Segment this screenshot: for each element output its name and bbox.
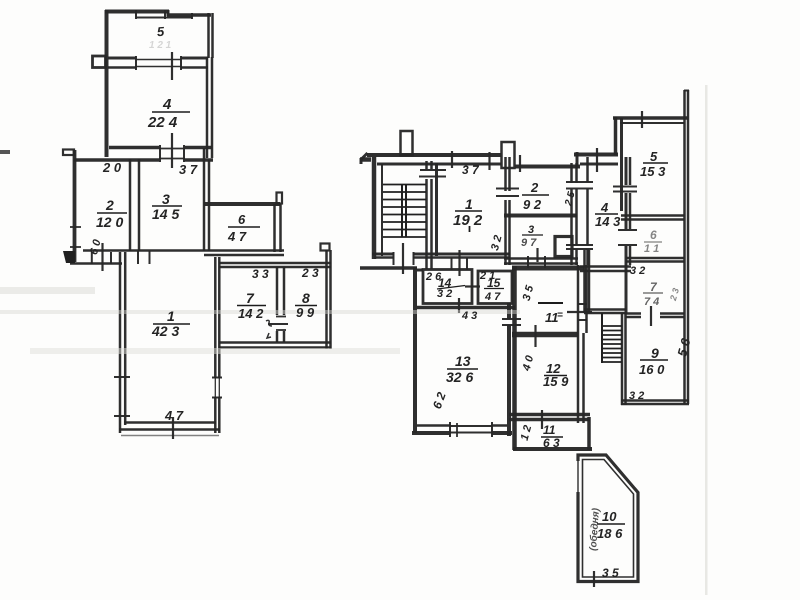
svg-text:1: 1 <box>167 308 175 324</box>
svg-text:5: 5 <box>156 24 165 40</box>
svg-text:5 6: 5 6 <box>674 336 693 358</box>
svg-text:2 3: 2 3 <box>301 266 319 280</box>
svg-text:1 2: 1 2 <box>519 424 535 442</box>
svg-text:2 0: 2 0 <box>102 160 122 175</box>
svg-text:4: 4 <box>600 200 609 215</box>
svg-text:6: 6 <box>238 212 246 227</box>
svg-text:14 5: 14 5 <box>152 206 179 222</box>
svg-text:3 7: 3 7 <box>179 162 198 177</box>
svg-text:18 6: 18 6 <box>597 526 623 541</box>
svg-text:3 7: 3 7 <box>462 163 480 177</box>
svg-text:4 7: 4 7 <box>164 408 184 423</box>
svg-text:9: 9 <box>651 345 659 361</box>
svg-text:13: 13 <box>455 353 471 369</box>
svg-text:3 2: 3 2 <box>629 390 644 402</box>
svg-text:3: 3 <box>162 191 170 207</box>
svg-text:3 2: 3 2 <box>489 234 505 252</box>
svg-text:(обедня): (обедня) <box>587 507 602 551</box>
svg-text:3: 3 <box>528 224 534 236</box>
svg-text:3 2: 3 2 <box>437 288 452 300</box>
svg-text:1 1: 1 1 <box>644 243 659 255</box>
svg-text:3 5: 3 5 <box>521 283 537 302</box>
svg-text:1 2 1: 1 2 1 <box>149 40 172 51</box>
svg-text:5: 5 <box>650 149 658 164</box>
svg-text:32 6: 32 6 <box>446 369 473 385</box>
svg-text:42 3: 42 3 <box>151 323 179 339</box>
svg-text:=: = <box>557 310 563 321</box>
svg-text:3 2: 3 2 <box>630 265 645 277</box>
svg-text:7 4: 7 4 <box>644 296 659 308</box>
svg-text:9 2: 9 2 <box>523 197 542 212</box>
svg-text:7: 7 <box>246 290 255 306</box>
svg-text:6 2: 6 2 <box>430 390 449 411</box>
svg-text:10: 10 <box>602 509 617 524</box>
svg-text:2: 2 <box>105 197 114 213</box>
svg-text:2: 2 <box>530 180 539 195</box>
svg-text:3 3: 3 3 <box>252 267 269 281</box>
svg-text:6 3: 6 3 <box>543 436 560 450</box>
svg-text:4 7: 4 7 <box>227 229 247 244</box>
svg-text:11: 11 <box>543 423 556 437</box>
svg-text:8: 8 <box>302 290 310 306</box>
svg-text:4: 4 <box>162 96 172 113</box>
svg-text:15 3: 15 3 <box>640 164 666 179</box>
svg-text:12 0: 12 0 <box>96 214 123 230</box>
svg-text:19 2: 19 2 <box>453 212 483 229</box>
svg-text:14 3: 14 3 <box>595 214 621 229</box>
svg-text:3 5: 3 5 <box>602 566 619 580</box>
svg-text:4 7: 4 7 <box>484 291 501 303</box>
svg-text:15 9: 15 9 <box>543 374 569 389</box>
svg-text:1: 1 <box>465 196 473 212</box>
svg-text:9 9: 9 9 <box>296 305 315 320</box>
svg-text:2 3: 2 3 <box>668 287 681 303</box>
svg-text:14 2: 14 2 <box>238 306 264 321</box>
svg-text:7: 7 <box>650 280 658 294</box>
svg-text:22 4: 22 4 <box>147 114 178 131</box>
svg-text:4 3: 4 3 <box>461 310 477 322</box>
svg-text:9 7: 9 7 <box>521 237 537 249</box>
svg-text:6: 6 <box>650 228 657 242</box>
svg-text:16 0: 16 0 <box>639 362 665 377</box>
svg-text:4 0: 4 0 <box>520 353 536 373</box>
